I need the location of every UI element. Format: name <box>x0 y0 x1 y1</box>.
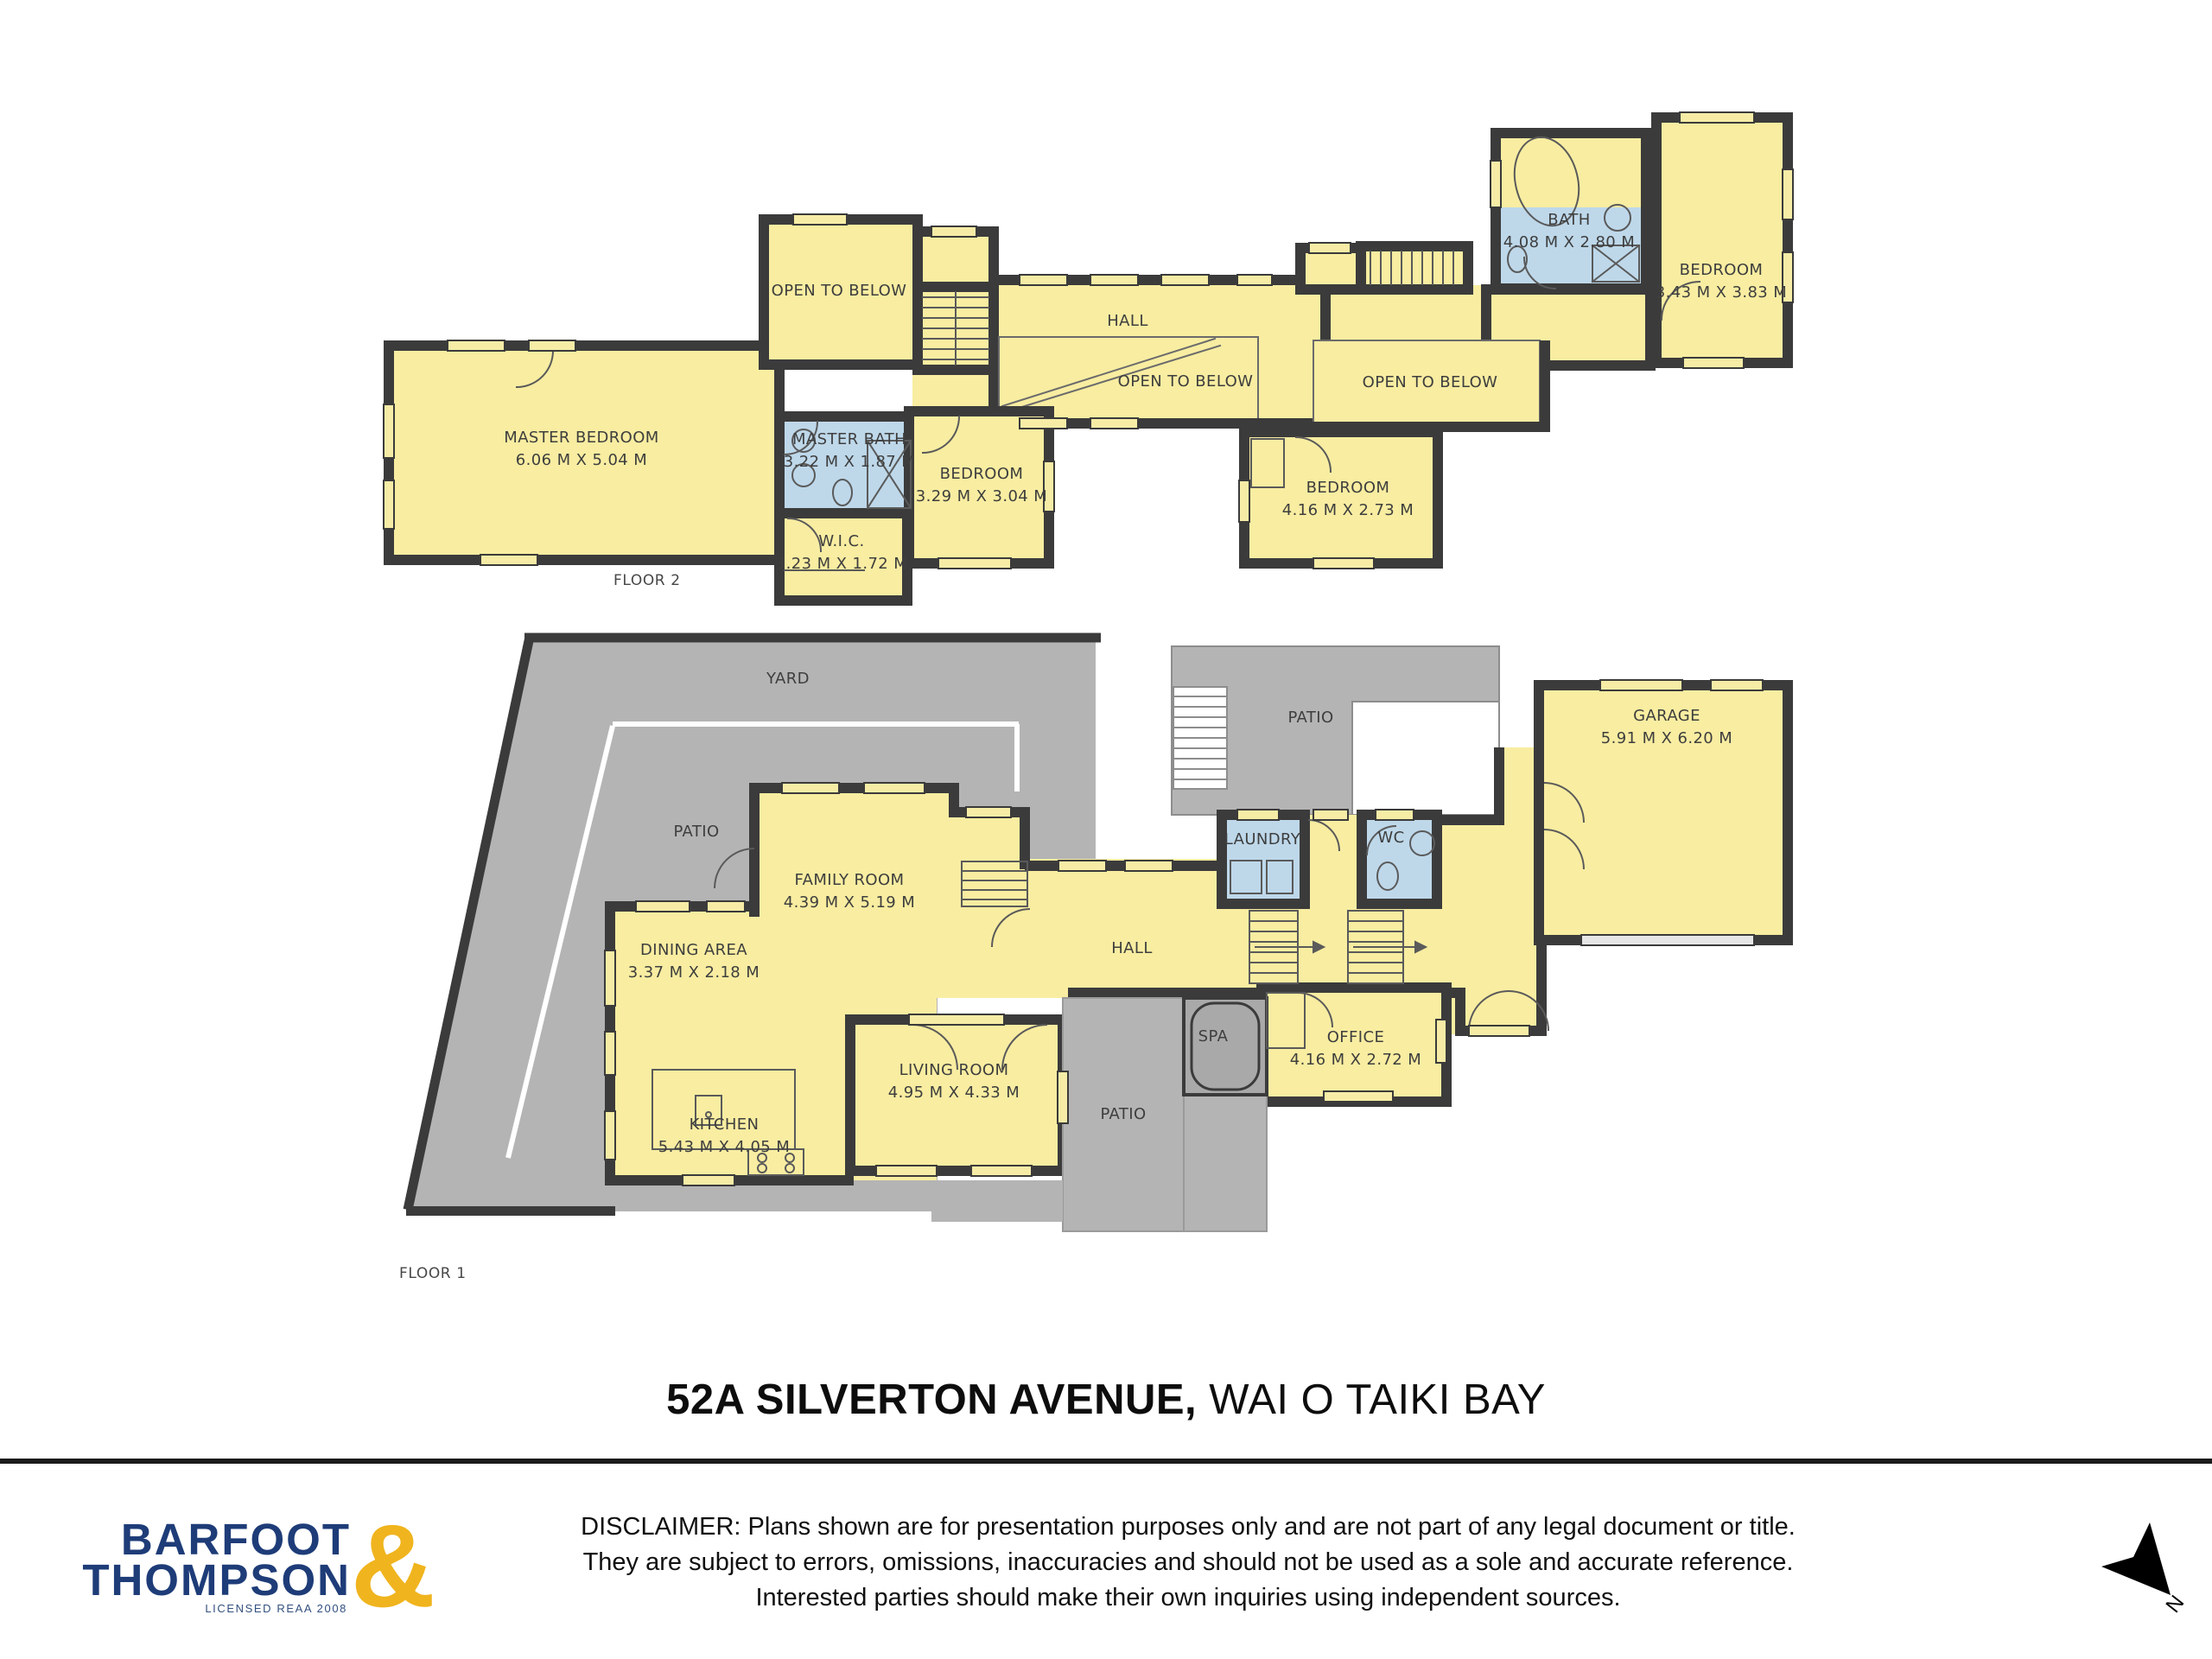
floor1-label: FLOOR 1 <box>399 1265 467 1282</box>
room-label-office: OFFICE4.16 M X 2.72 M <box>1290 1027 1421 1071</box>
title-suburb: WAI O TAIKI BAY <box>1197 1376 1546 1423</box>
room-bedroom-343 <box>1656 118 1788 363</box>
disclaimer-line1: DISCLAIMER: Plans shown are for presenta… <box>458 1510 1918 1545</box>
room-label-hall-floor1: HALL <box>1111 938 1153 960</box>
disclaimer-text: DISCLAIMER: Plans shown are for presenta… <box>458 1510 1918 1616</box>
room-label-wc: WC <box>1377 827 1404 849</box>
floor2-plan <box>384 112 1793 601</box>
page-title: 52A SILVERTON AVENUE, WAI O TAIKI BAY <box>0 1376 2212 1424</box>
room-label-garage: GARAGE5.91 M X 6.20 M <box>1601 705 1732 750</box>
floor2-landing-upper <box>918 232 994 287</box>
patio-under-living <box>931 1180 1063 1222</box>
barfoot-thompson-logo: BARFOOT THOMPSON & LICENSED REAA 2008 <box>93 1514 430 1635</box>
disclaimer-line3: Interested parties should make their own… <box>458 1580 1918 1616</box>
room-label-open-to-below-2: OPEN TO BELOW <box>1118 371 1254 393</box>
yard-label: YARD <box>766 668 810 690</box>
room-label-living-room: LIVING ROOM4.95 M X 4.33 M <box>888 1059 1020 1104</box>
room-label-open-to-below-3: OPEN TO BELOW <box>1363 372 1498 394</box>
patio-top-area <box>1172 646 1499 815</box>
footer-separator <box>0 1459 2212 1464</box>
disclaimer-line2: They are subject to errors, omissions, i… <box>458 1545 1918 1580</box>
yard-wall-bottom <box>406 1206 615 1216</box>
room-label-dining-area: DINING AREA3.37 M X 2.18 M <box>628 939 760 984</box>
logo-ampersand-icon: & <box>351 1498 435 1633</box>
floor1-plan <box>406 637 1788 1231</box>
north-arrow: N <box>2101 1522 2189 1618</box>
patio-bottom-area-2 <box>1184 1095 1267 1231</box>
spa-label: SPA <box>1198 1026 1229 1048</box>
floor2-stairs-2 <box>1361 246 1468 289</box>
room-label-bedroom-329: BEDROOM3.29 M X 3.04 M <box>916 463 1047 508</box>
floor-plan-page: N MASTER BEDROOM6.06 M X 5.04 M OPEN TO … <box>0 0 2212 1659</box>
room-label-master-bedroom: MASTER BEDROOM6.06 M X 5.04 M <box>504 427 658 472</box>
north-arrow-icon <box>2101 1522 2171 1595</box>
room-label-bedroom-343: BEDROOM3.43 M X 3.83 M <box>1656 259 1787 304</box>
room-label-kitchen: KITCHEN5.43 M X 4.05 M <box>658 1114 790 1159</box>
patio-left-label: PATIO <box>673 821 719 843</box>
logo-line2: THOMPSON <box>82 1554 351 1605</box>
room-label-hall-floor2: HALL <box>1107 310 1148 333</box>
patio-bottom-label: PATIO <box>1100 1103 1146 1126</box>
room-label-open-to-below-1: OPEN TO BELOW <box>772 280 907 302</box>
title-address: 52A SILVERTON AVENUE, <box>666 1376 1197 1423</box>
room-label-wic: W.I.C.3.23 M X 1.72 M <box>776 531 907 575</box>
room-label-laundry: LAUNDRY <box>1224 829 1300 851</box>
room-label-family-room: FAMILY ROOM4.39 M X 5.19 M <box>784 869 915 914</box>
patio-top-label: PATIO <box>1287 707 1333 729</box>
room-label-bedroom-416: BEDROOM4.16 M X 2.73 M <box>1282 477 1414 522</box>
room-label-bath: BATH4.08 M X 2.80 M <box>1503 209 1635 254</box>
floor2-landing-2 <box>1300 248 1361 289</box>
floor2-label: FLOOR 2 <box>613 572 681 589</box>
logo-license: LICENSED REAA 2008 <box>205 1602 347 1615</box>
north-label: N <box>2161 1591 2189 1617</box>
room-label-master-bath: MASTER BATH3.22 M X 1.87 M <box>784 429 915 474</box>
